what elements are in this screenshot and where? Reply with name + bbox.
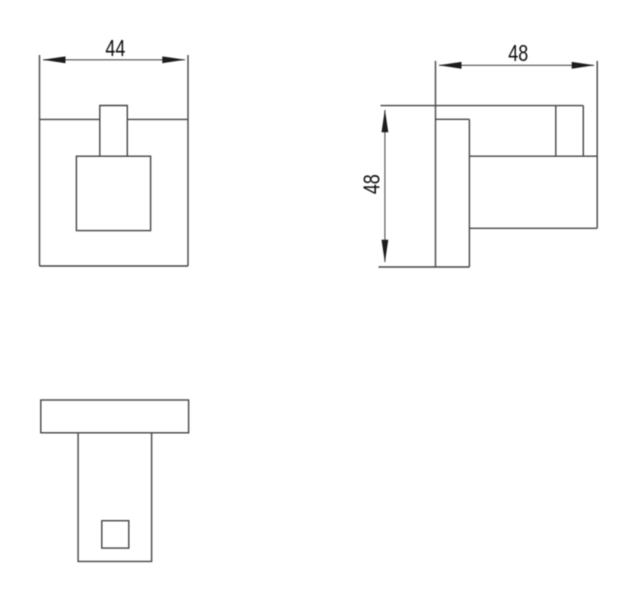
svg-text:48: 48 (508, 41, 528, 67)
svg-text:44: 44 (105, 36, 125, 62)
svg-text:48: 48 (360, 174, 386, 194)
